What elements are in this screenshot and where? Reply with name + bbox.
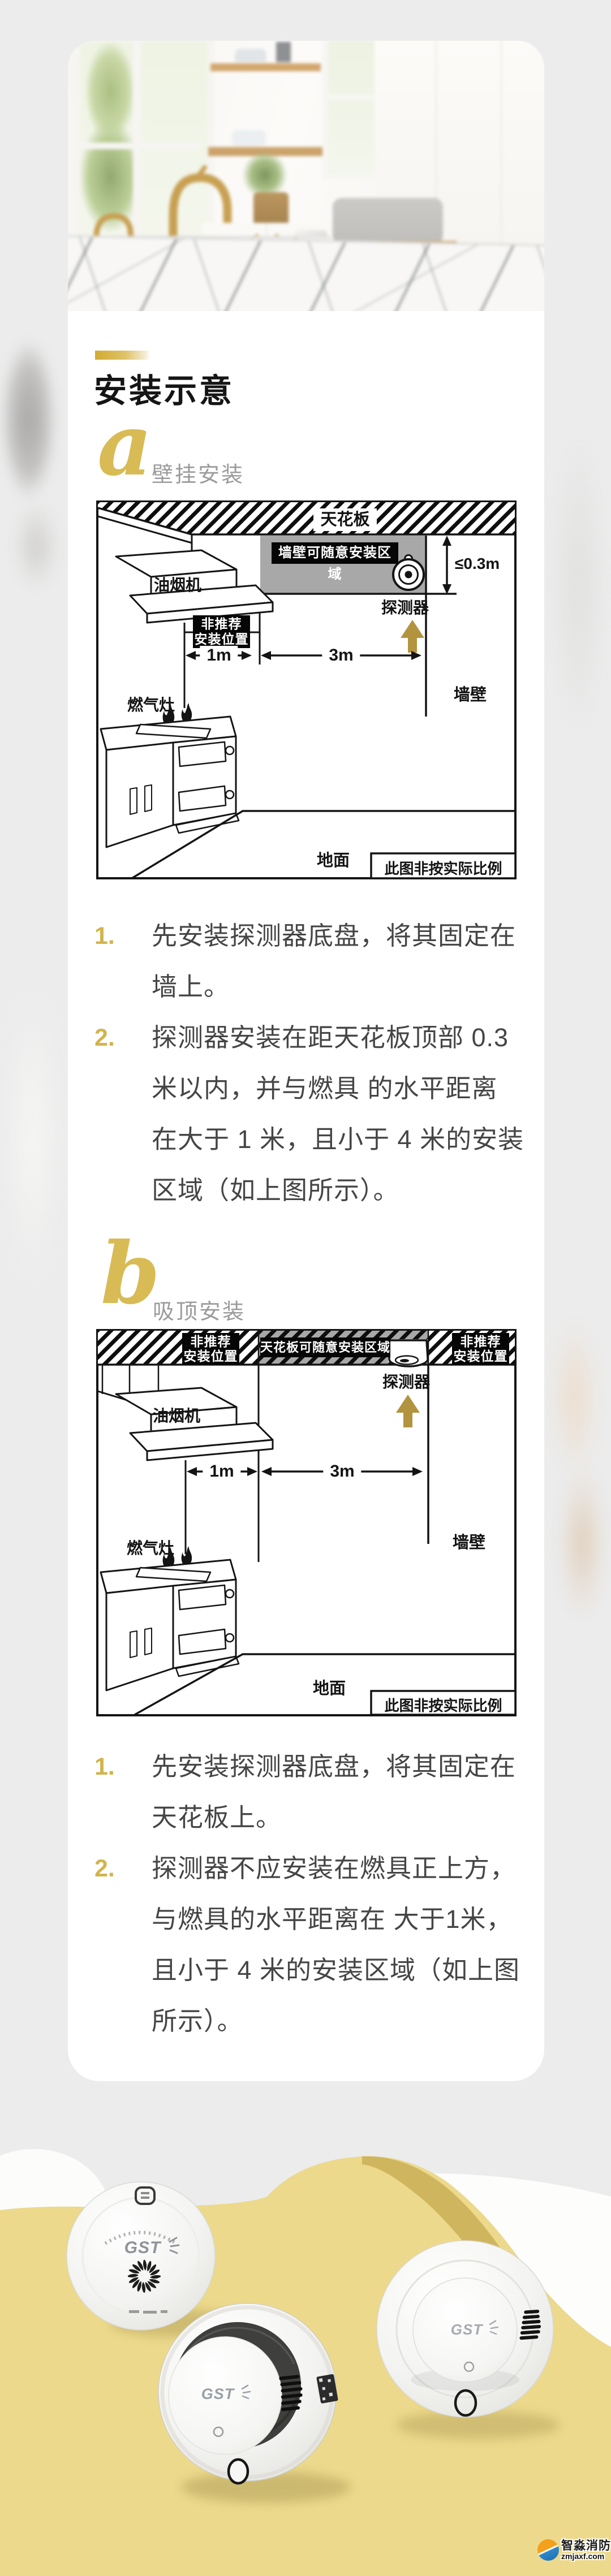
kitchen-photo-art [68,41,544,311]
step-a-2: 2. 探测器安装在距天花板顶部 0.3 米以内，并与燃具 的水平距离 在大于 1… [94,1012,547,1216]
label-wall: 墙壁 [454,681,487,705]
watermark-site: zmjaxf.com [561,2552,611,2561]
label-stove: 燃气灶 [127,693,175,715]
bg-right-gray-blur [540,368,611,848]
step-text: 先安装探测器底盘，将其固定在 天花板上。 [152,1741,516,1843]
gst-logo: GST [201,2385,235,2402]
step-text: 探测器不应安装在燃具正上方， 与燃具的水平距离在 大于1米， 且小于 4 米的安… [152,1843,520,2047]
step-number: 2. [94,1843,152,1894]
diagram-b-art [96,1329,517,1716]
product-showcase: GST [0,2081,611,2576]
label-3m: 3m [322,646,360,665]
steps-a: 1. 先安装探测器底盘，将其固定在 墙上。 2. 探测器安装在距天花板顶部 0.… [94,911,547,1216]
label-max-dist: ≤0.3m [455,555,500,573]
marble-counter [68,235,544,311]
section-a-subtitle: 壁挂安装 [152,457,244,488]
label-zone: 天花板可随意安装区域 [260,1337,390,1357]
label-not-recommended: 非推荐 安装位置 [193,615,250,648]
label-hood: 油烟机 [154,573,201,596]
diagram-ceiling-mount: 非推荐 安装位置 天花板可随意安装区域 非推荐 安装位置 探测器 油烟机 1m … [96,1329,517,1716]
step-a-1: 1. 先安装探测器底盘，将其固定在 墙上。 [94,911,547,1012]
step-text: 先安装探测器底盘，将其固定在 墙上。 [152,911,516,1012]
kitchen-photo [68,41,544,311]
step-number: 2. [94,1012,152,1063]
bg-pot-blur [0,317,71,611]
step-number: 1. [94,911,152,961]
label-floor: 地面 [313,1675,346,1699]
wood-shelf-upper [210,63,321,71]
self-test-button [136,2187,154,2204]
gst-logo: GST [124,2238,162,2257]
watermark: 智淼消防 zmjaxf.com [537,2539,611,2561]
section-b-subtitle: 吸顶安装 [153,1294,246,1325]
label-detector: 探测器 [382,1370,430,1392]
diagram-wall-mount: 天花板 墙壁可随意安装区域 ≤0.3m 探测器 油烟机 非推荐 安装位置 1m … [96,500,517,879]
product-detail-page: 安装示意 a 壁挂安装 [0,0,611,2576]
label-stove: 燃气灶 [127,1536,174,1559]
indicator-oval [229,2460,248,2483]
label-detector: 探测器 [381,596,429,618]
bg-left-light-blur [0,933,71,1442]
step-text: 探测器安装在距天花板顶部 0.3 米以内，并与燃具 的水平距离 在大于 1 米，… [152,1012,524,1216]
product-art: GST [0,2081,611,2576]
label-wall: 墙壁 [453,1529,485,1553]
label-hood: 油烟机 [153,1404,200,1426]
label-3m: 3m [323,1462,361,1481]
label-ceiling: 天花板 [313,508,377,531]
label-scale-note: 此图非按实际比例 [371,857,515,878]
watermark-logo-icon [537,2539,559,2561]
content-card: 安装示意 a 壁挂安装 [68,41,544,2081]
section-b-letter: b [101,1231,160,1316]
bench-cushion [333,198,443,244]
step-number: 1. [94,1741,152,1792]
gst-logo: GST [451,2321,484,2338]
label-scale-note: 此图非按实际比例 [371,1694,515,1715]
heading-accent-bar [95,351,150,360]
label-1m: 1m [200,646,238,665]
label-not-recommended-left: 非推荐 安装位置 [182,1333,239,1365]
step-b-1: 1. 先安装探测器底盘，将其固定在 天花板上。 [94,1741,547,1843]
detector-icon [388,1339,428,1366]
step-b-2: 2. 探测器不应安装在燃具正上方， 与燃具的水平距离在 大于1米， 且小于 4 … [94,1843,547,2047]
label-zone: 墙壁可随意安装区域 [272,542,398,564]
label-not-recommended-right: 非推荐 安装位置 [452,1333,509,1365]
watermark-name: 智淼消防 [561,2540,611,2552]
bg-right-warm-blur [540,1289,611,1651]
label-1m: 1m [203,1462,240,1481]
label-floor: 地面 [317,847,350,871]
section-a-letter: a [97,403,152,487]
steps-b: 1. 先安装探测器底盘，将其固定在 天花板上。 2. 探测器不应安装在燃具正上方… [94,1741,547,2047]
